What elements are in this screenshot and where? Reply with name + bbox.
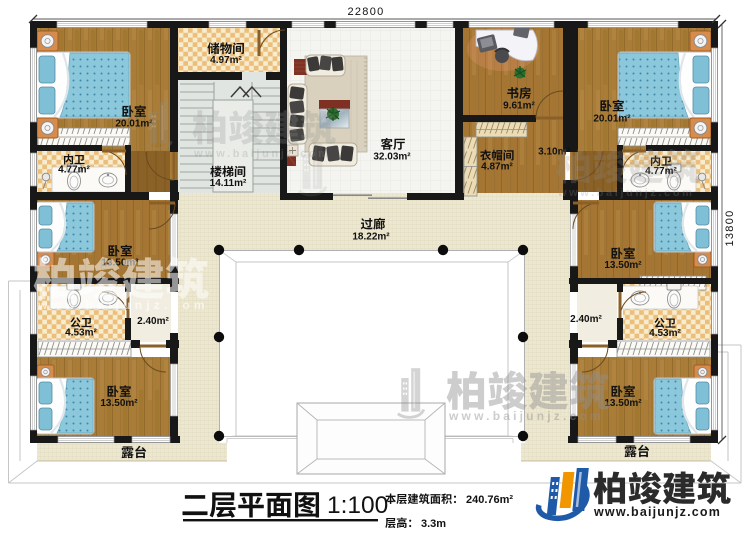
svg-text:20.01m²: 20.01m²	[115, 119, 153, 130]
svg-text:13800: 13800	[724, 209, 736, 246]
svg-text:13.50m²: 13.50m²	[604, 398, 642, 409]
svg-text:4.97m²: 4.97m²	[210, 55, 242, 66]
svg-text:13.50m²: 13.50m²	[100, 398, 138, 409]
svg-text:1:100: 1:100	[327, 492, 388, 519]
svg-text:2.40m²: 2.40m²	[137, 316, 169, 327]
svg-text:20.01m²: 20.01m²	[593, 114, 631, 125]
svg-text:4.77m²: 4.77m²	[58, 165, 90, 176]
svg-text:4.53m²: 4.53m²	[649, 328, 681, 339]
svg-text:9.61m²: 9.61m²	[503, 101, 535, 112]
svg-text:3.3m: 3.3m	[421, 518, 446, 530]
svg-text:240.76m²: 240.76m²	[466, 494, 513, 506]
svg-text:www.baijunjz.com: www.baijunjz.com	[557, 187, 695, 199]
svg-text:14.11m²: 14.11m²	[210, 178, 247, 189]
svg-text:18.22m²: 18.22m²	[352, 232, 390, 243]
svg-text:22800: 22800	[347, 6, 384, 18]
svg-text:www.baijunjz.com: www.baijunjz.com	[448, 409, 604, 423]
svg-text:www.baijunjz.com: www.baijunjz.com	[37, 298, 209, 312]
svg-text:www.baijunjz.com: www.baijunjz.com	[593, 505, 721, 519]
svg-text:13.50m²: 13.50m²	[604, 260, 642, 271]
svg-text:4.53m²: 4.53m²	[65, 328, 97, 339]
svg-text:4.87m²: 4.87m²	[481, 162, 513, 173]
svg-text:2.40m²: 2.40m²	[570, 314, 602, 325]
svg-text:32.03m²: 32.03m²	[373, 152, 411, 163]
